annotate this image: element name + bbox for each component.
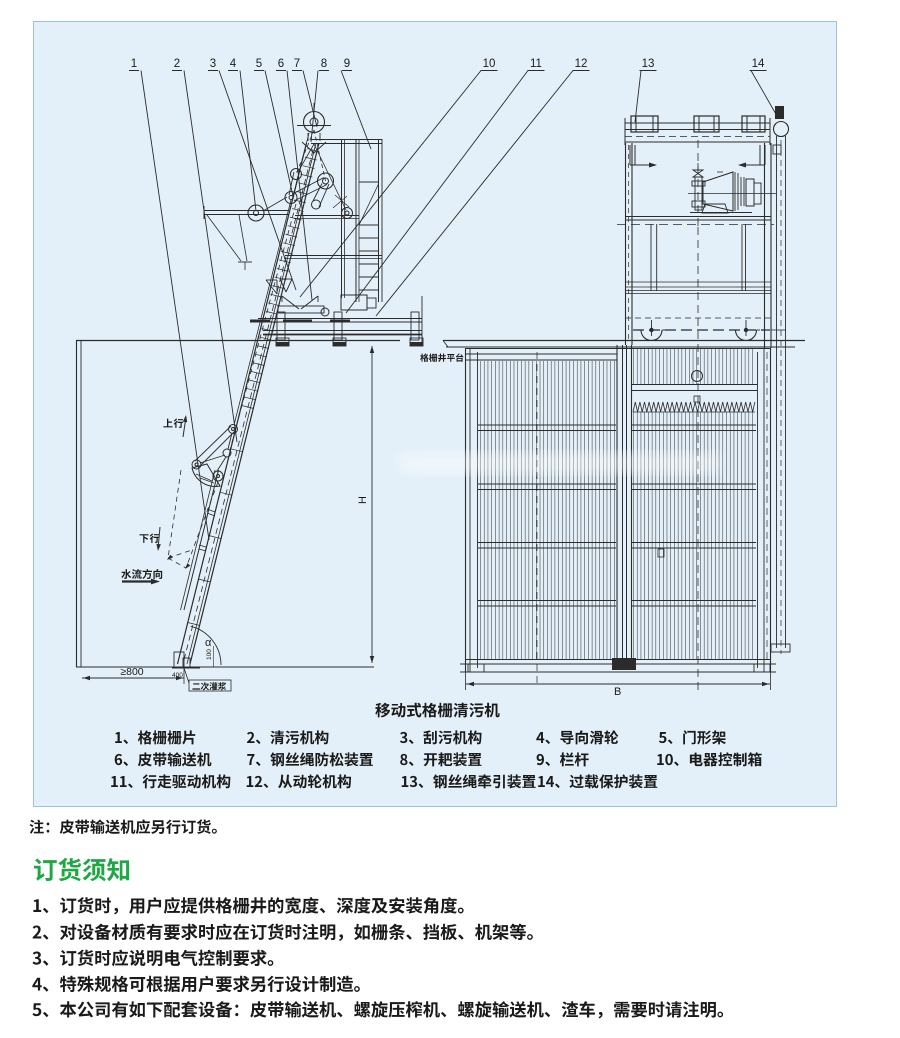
svg-text:10: 10 <box>483 58 496 70</box>
svg-text:7: 7 <box>294 58 300 70</box>
svg-text:11: 11 <box>530 58 542 70</box>
svg-text:12: 12 <box>575 58 588 70</box>
svg-text:2: 2 <box>174 58 180 70</box>
svg-text:5: 5 <box>256 58 262 70</box>
svg-text:6: 6 <box>278 58 284 70</box>
svg-text:100: 100 <box>206 649 213 660</box>
svg-text:400: 400 <box>172 672 183 679</box>
svg-text:α: α <box>205 637 212 649</box>
svg-text:≥800: ≥800 <box>120 666 143 678</box>
svg-text:13: 13 <box>642 58 655 70</box>
svg-text:14: 14 <box>752 58 765 70</box>
svg-text:1: 1 <box>131 58 137 70</box>
svg-text:3: 3 <box>210 58 216 70</box>
svg-text:8: 8 <box>321 58 327 70</box>
svg-text:9: 9 <box>344 58 350 70</box>
svg-text:B: B <box>614 686 621 698</box>
svg-text:4: 4 <box>230 58 237 70</box>
svg-text:H: H <box>357 496 369 504</box>
